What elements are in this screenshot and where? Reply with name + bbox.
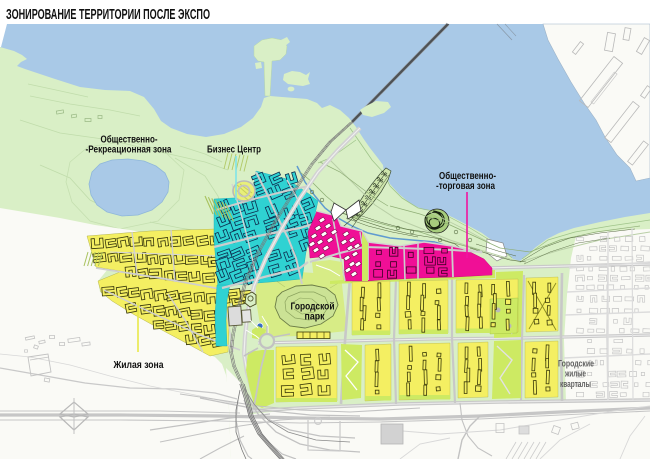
- svg-text:кварталы: кварталы: [560, 379, 591, 389]
- svg-text:ЗОНИРОВАНИЕ ТЕРРИТОРИИ ПОСЛЕ Э: ЗОНИРОВАНИЕ ТЕРРИТОРИИ ПОСЛЕ ЭКСПО: [6, 7, 210, 23]
- svg-text:Бизнес Центр: Бизнес Центр: [207, 144, 261, 155]
- svg-text:Жилая зона: Жилая зона: [113, 360, 164, 371]
- svg-text:парк: парк: [305, 312, 325, 323]
- svg-text:Городские: Городские: [558, 359, 594, 369]
- svg-text:-торговая зона: -торговая зона: [436, 181, 495, 192]
- svg-text:-Рекреационная зона: -Рекреационная зона: [86, 144, 172, 155]
- svg-text:жилые: жилые: [564, 369, 586, 379]
